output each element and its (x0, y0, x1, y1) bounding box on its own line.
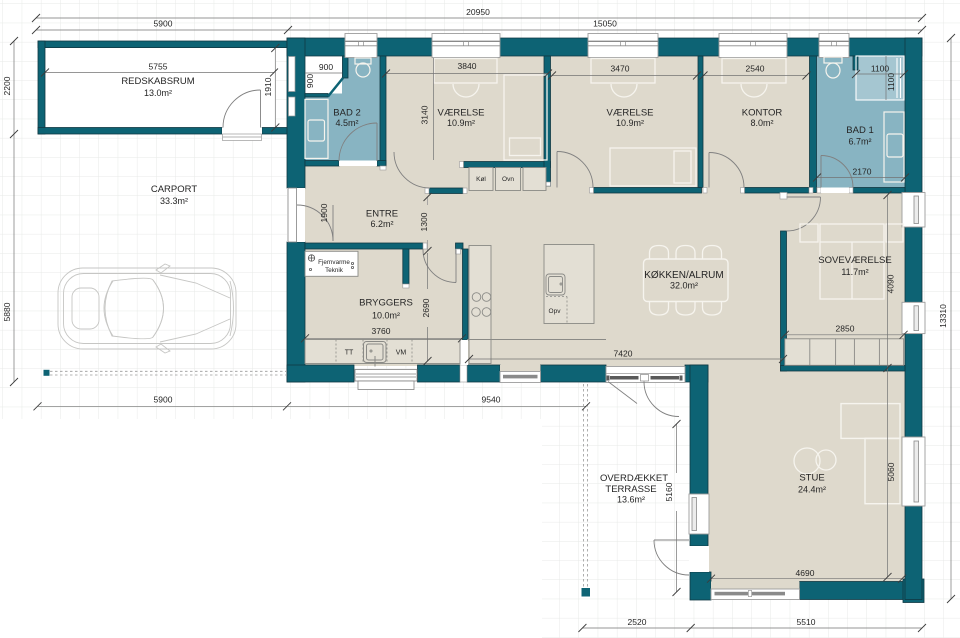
svg-text:4690: 4690 (796, 568, 815, 578)
svg-text:3140: 3140 (420, 105, 430, 124)
svg-text:13.0m²: 13.0m² (144, 88, 172, 98)
svg-text:2540: 2540 (746, 64, 765, 74)
svg-text:1910: 1910 (263, 77, 273, 96)
svg-text:SOVEVÆRELSE: SOVEVÆRELSE (818, 255, 891, 266)
svg-text:13310: 13310 (938, 304, 948, 328)
svg-text:OVERDÆKKET: OVERDÆKKET (600, 473, 668, 484)
svg-text:900: 900 (305, 74, 315, 88)
svg-text:Køl: Køl (476, 176, 486, 183)
svg-text:4.5m²: 4.5m² (335, 118, 358, 128)
svg-text:7420: 7420 (614, 349, 633, 359)
svg-text:1100: 1100 (886, 73, 896, 92)
svg-text:2520: 2520 (628, 617, 647, 627)
svg-text:2170: 2170 (853, 167, 872, 177)
svg-text:32.0m²: 32.0m² (670, 281, 698, 291)
svg-text:Opv: Opv (549, 308, 562, 315)
svg-text:1900: 1900 (319, 203, 329, 222)
svg-text:2850: 2850 (836, 324, 855, 334)
svg-text:5880: 5880 (2, 302, 12, 321)
svg-text:4090: 4090 (886, 274, 896, 293)
svg-text:KØKKEN/ALRUM: KØKKEN/ALRUM (644, 270, 723, 281)
svg-text:10.9m²: 10.9m² (447, 118, 475, 128)
svg-text:Fjernvarme: Fjernvarme (318, 259, 350, 266)
svg-text:VÆRELSE: VÆRELSE (607, 108, 654, 119)
svg-text:3840: 3840 (458, 61, 477, 71)
svg-text:15050: 15050 (593, 19, 617, 29)
svg-text:11.7m²: 11.7m² (841, 267, 868, 277)
svg-text:2690: 2690 (421, 298, 431, 317)
svg-text:5900: 5900 (154, 19, 173, 29)
svg-text:20950: 20950 (466, 7, 490, 17)
svg-text:STUE: STUE (799, 473, 824, 484)
svg-text:5510: 5510 (797, 617, 816, 627)
svg-text:VM: VM (396, 350, 407, 357)
svg-text:REDSKABSRUM: REDSKABSRUM (121, 76, 194, 87)
svg-text:CARPORT: CARPORT (151, 184, 197, 195)
svg-text:33.3m²: 33.3m² (160, 196, 188, 206)
svg-text:1300: 1300 (419, 212, 429, 231)
svg-text:ENTRE: ENTRE (366, 209, 398, 220)
svg-text:8.0m²: 8.0m² (750, 118, 773, 128)
svg-text:TERRASSE: TERRASSE (605, 484, 656, 495)
svg-text:BRYGGERS: BRYGGERS (359, 298, 413, 309)
svg-text:10.0m²: 10.0m² (372, 311, 400, 321)
svg-text:24.4m²: 24.4m² (798, 485, 826, 495)
svg-text:9540: 9540 (482, 395, 501, 405)
svg-text:6.7m²: 6.7m² (848, 137, 871, 147)
svg-text:VÆRELSE: VÆRELSE (438, 108, 485, 119)
svg-text:6.2m²: 6.2m² (370, 219, 393, 229)
svg-text:1100: 1100 (871, 64, 890, 74)
svg-text:5900: 5900 (154, 395, 173, 405)
svg-text:Teknik: Teknik (325, 267, 344, 274)
svg-text:KONTOR: KONTOR (742, 108, 783, 119)
svg-text:2200: 2200 (2, 76, 12, 95)
svg-text:10.9m²: 10.9m² (616, 118, 644, 128)
svg-text:3760: 3760 (372, 326, 391, 336)
svg-text:5060: 5060 (886, 462, 896, 481)
svg-text:5160: 5160 (664, 482, 674, 501)
svg-text:5755: 5755 (149, 62, 168, 72)
svg-text:TT: TT (345, 350, 354, 357)
svg-text:BAD 1: BAD 1 (846, 125, 873, 136)
svg-text:900: 900 (319, 62, 333, 72)
svg-text:Ovn: Ovn (502, 176, 514, 183)
svg-text:BAD 2: BAD 2 (333, 108, 360, 119)
svg-text:13.6m²: 13.6m² (617, 495, 645, 505)
svg-text:3470: 3470 (611, 64, 630, 74)
